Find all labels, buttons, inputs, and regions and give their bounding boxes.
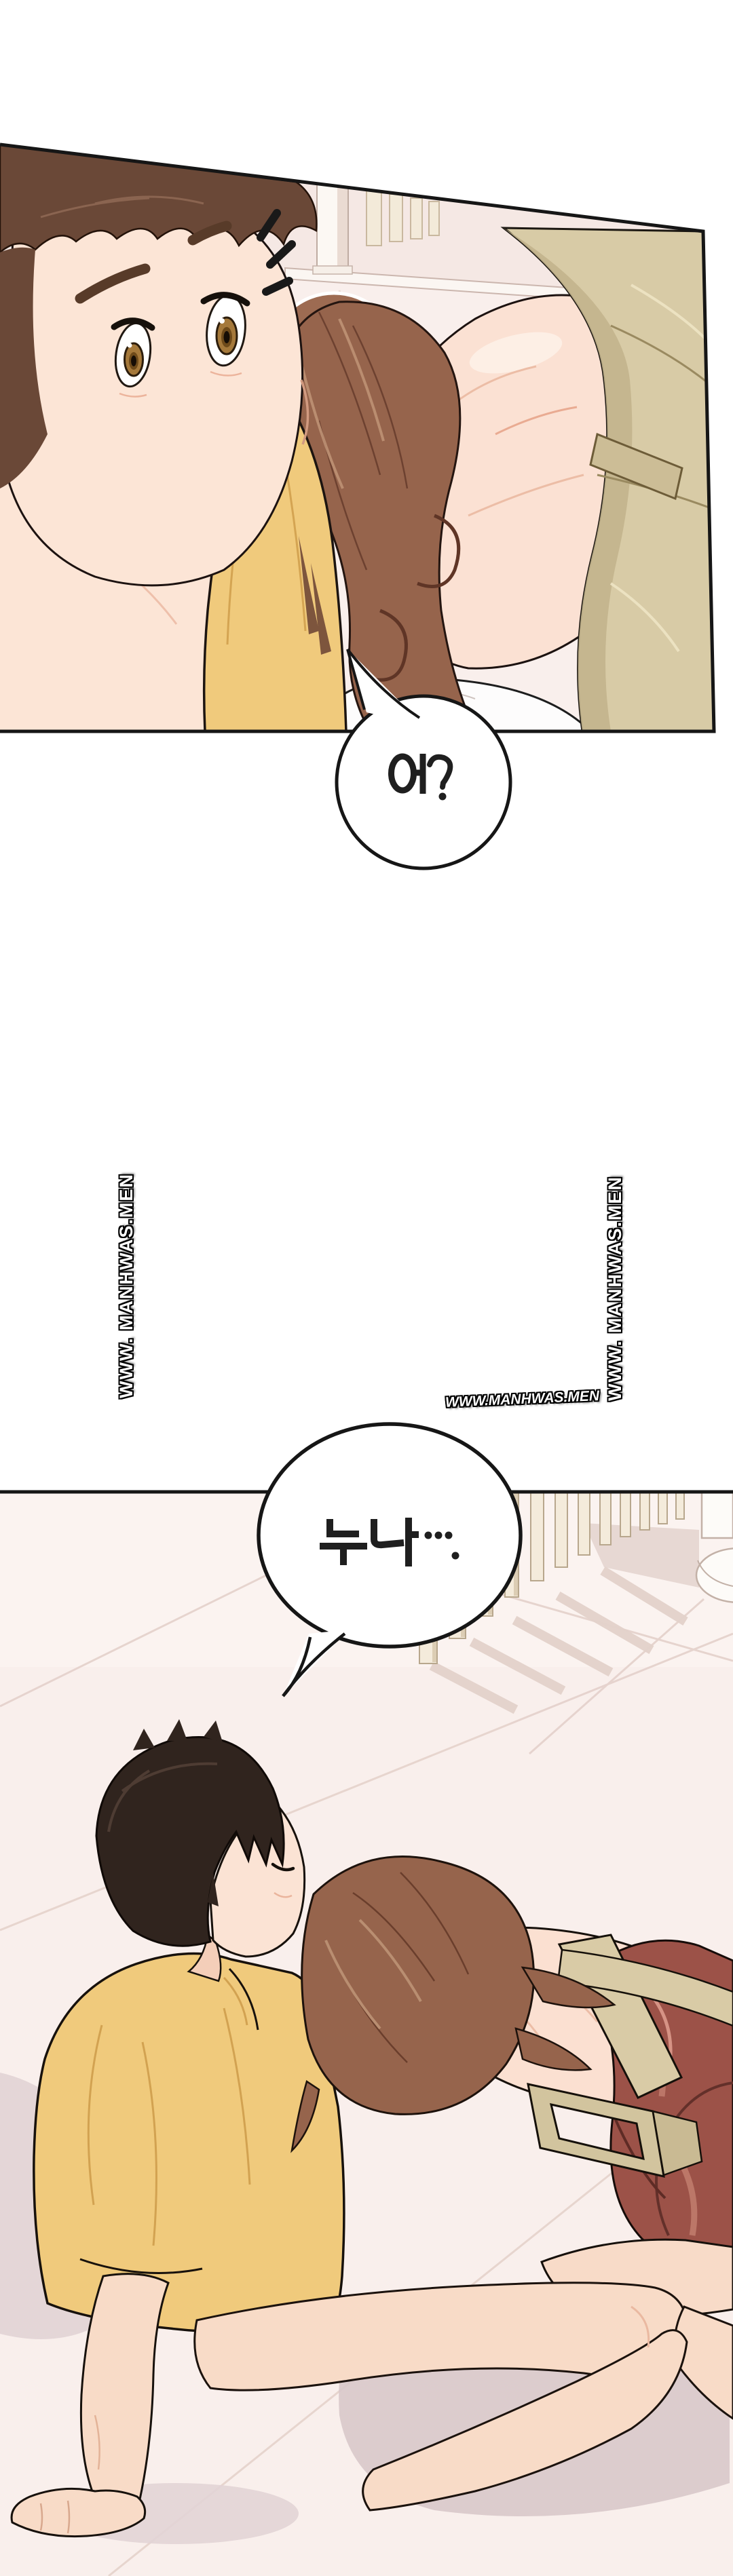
watermark-right-vertical: WWW. MANHWAS.MEN xyxy=(601,1166,628,1410)
man-hand xyxy=(12,2488,145,2536)
panel-1 xyxy=(0,145,714,731)
watermark-left-vertical: WWW. MANHWAS.MEN xyxy=(113,1164,140,1408)
webtoon-page: WWW. MANHWAS.MEN WWW. MANHWAS.MEN WWW.MA… xyxy=(0,0,733,2576)
man-face xyxy=(7,190,303,585)
background-column xyxy=(313,178,352,274)
panel-2 xyxy=(0,1491,733,2576)
